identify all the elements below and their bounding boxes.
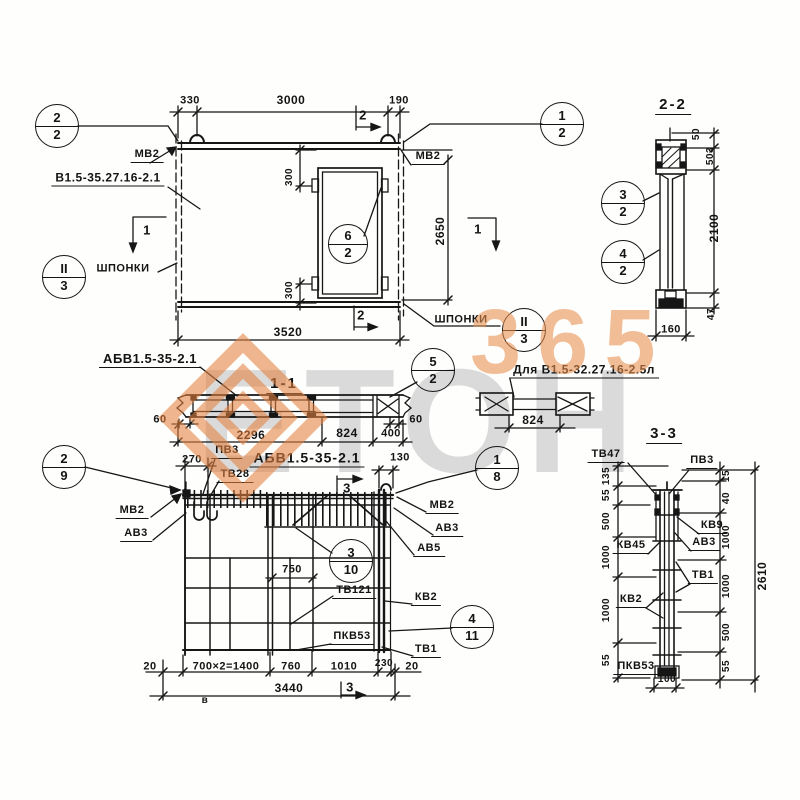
drawing-sheet: ЕТОН — [0, 0, 800, 800]
dim-55-l1: 55 — [602, 489, 612, 501]
dim-3000: 3000 — [277, 94, 306, 106]
dim-2610: 2610 — [756, 562, 768, 591]
label-av3-plan-left: АВ3 — [120, 528, 152, 542]
label-pv3-plan: ПВ3 — [211, 445, 242, 459]
section-3-3-lines — [613, 462, 759, 692]
label-kv9: КВ9 — [697, 520, 727, 534]
callout-top: 4 — [468, 612, 475, 626]
callout-1-8: 18 — [475, 446, 519, 490]
dim-500-l: 500 — [602, 512, 612, 530]
dim-60-left: 60 — [153, 415, 166, 426]
marker-1-left: 1 — [143, 224, 151, 237]
callout-bottom: 2 — [53, 128, 60, 142]
callout-2-2-position: 22 — [35, 104, 79, 148]
callout-bottom: 3 — [60, 279, 67, 293]
callout-bottom: 2 — [619, 205, 626, 219]
callout-top: II — [520, 315, 527, 329]
dim-60-right: 60 — [409, 415, 422, 426]
callout-4-11: 411 — [450, 605, 494, 649]
callout-top: 3 — [619, 188, 626, 202]
marker-2-top: 2 — [359, 109, 367, 122]
dim-3520: 3520 — [274, 326, 303, 338]
label-av3-plan-right: АВ3 — [431, 523, 463, 537]
dim-1000-r2: 1000 — [722, 574, 732, 598]
label-av5: АВ5 — [413, 543, 445, 557]
dim-330: 330 — [180, 96, 200, 107]
marker-3-bottom: 3 — [346, 681, 354, 694]
callout-top: 2 — [60, 452, 67, 466]
dim-2296: 2296 — [237, 429, 266, 441]
marker-3-top: 3 — [343, 482, 351, 495]
dim-135: 135 — [602, 467, 612, 485]
dim-47: 47 — [707, 308, 717, 320]
label-kv45: КВ45 — [613, 540, 650, 554]
dim-190: 190 — [389, 96, 409, 107]
callout-4-2: 42 — [601, 240, 645, 284]
dim-130: 130 — [390, 453, 410, 464]
callout-keys-left: II3 — [42, 255, 86, 299]
label-mv2-right: МВ2 — [412, 151, 445, 165]
callout-bottom: 2 — [558, 126, 565, 140]
label-pkv53-plan: ПКВ53 — [329, 631, 374, 645]
plan-title: АБВ1.5-35-2.1 — [249, 451, 364, 468]
callout-3-2: 32 — [601, 181, 645, 225]
callout-top: 2 — [53, 111, 60, 125]
dim-300-bottom: 300 — [285, 281, 295, 299]
dim-503: 503 — [706, 147, 716, 165]
dim-2650: 2650 — [434, 217, 446, 246]
callout-5-2: 52 — [411, 348, 455, 392]
callout-bottom: 2 — [429, 372, 436, 386]
dim-100: 100 — [658, 675, 676, 685]
callout-opening: 62 — [328, 224, 368, 264]
callout-bottom: 9 — [60, 469, 67, 483]
dim-1010: 1010 — [331, 662, 357, 673]
dim-230: 230 — [375, 659, 393, 669]
dim-3440: 3440 — [275, 682, 304, 694]
label-kv2-33: КВ2 — [616, 594, 646, 608]
label-v-mark: в — [202, 696, 209, 706]
dim-40-r: 40 — [722, 492, 732, 504]
label-mv2-plan-left: МВ2 — [116, 505, 149, 519]
dim-824: 824 — [336, 427, 358, 439]
section-2-2-title: 2-2 — [655, 97, 691, 115]
label-panel-mark: В1.5-35.27.16-2.1 — [51, 172, 164, 187]
callout-bottom: 8 — [493, 470, 500, 484]
callout-bottom: 2 — [619, 264, 626, 278]
dim-50: 50 — [692, 128, 702, 140]
label-tv121: ТВ121 — [332, 585, 376, 599]
label-tv47: ТВ47 — [588, 449, 625, 463]
label-shponki-right: ШПОНКИ — [434, 315, 487, 326]
callout-1-2-position: 12 — [540, 102, 584, 146]
callout-bottom: 3 — [520, 332, 527, 346]
marker-2-bottom: 2 — [357, 309, 365, 322]
callout-top: 1 — [493, 453, 500, 467]
dim-700x2: 700×2=1400 — [193, 662, 260, 673]
label-av3-33: АВ3 — [688, 537, 720, 551]
callout-top: 1 — [558, 109, 565, 123]
callout-top: 5 — [429, 355, 436, 369]
label-tv28: ТВ28 — [217, 469, 254, 483]
label-kv2-plan: КВ2 — [411, 592, 441, 606]
callout-3-10: 310 — [329, 539, 373, 583]
label-shponki-left: ШПОНКИ — [96, 264, 149, 275]
callout-top: 6 — [344, 229, 351, 243]
label-tv1-plan: ТВ1 — [411, 644, 441, 658]
dim-500-r: 500 — [722, 623, 732, 641]
label-tv1-33: ТВ1 — [688, 570, 718, 584]
label-pkv53-33: ПКВ53 — [613, 661, 658, 675]
dim-824-alt: 824 — [522, 414, 544, 426]
callout-bottom: 10 — [344, 563, 358, 577]
dim-270: 270 — [182, 455, 202, 466]
marker-1-right: 1 — [474, 223, 482, 236]
dim-160: 160 — [661, 325, 681, 336]
callout-top: 3 — [347, 546, 354, 560]
callout-2-9: 29 — [42, 445, 86, 489]
dim-1000-l2: 1000 — [602, 598, 612, 622]
dim-760: 760 — [281, 662, 301, 673]
label-pv3-33: ПВ3 — [686, 455, 717, 469]
dim-20-left: 20 — [143, 662, 156, 673]
dim-2100: 2100 — [708, 214, 720, 243]
dim-300-top: 300 — [285, 168, 295, 186]
dim-55-r: 55 — [722, 660, 732, 672]
dim-1000-l1: 1000 — [602, 545, 612, 569]
drawing-linework — [0, 0, 800, 800]
dim-55-l2: 55 — [602, 654, 612, 666]
callout-bottom: 11 — [465, 629, 479, 643]
callout-top: 4 — [619, 247, 626, 261]
dim-15-r: 15 — [722, 470, 732, 482]
label-mv2-left: МВ2 — [131, 149, 164, 163]
section-3-3-title: 3-3 — [646, 426, 682, 444]
dim-750: 750 — [282, 565, 302, 576]
callout-keys-right: II3 — [502, 308, 546, 352]
section-alt-title: Для В1.5-32.27.16-2.5л — [509, 364, 659, 379]
callout-top: II — [60, 262, 67, 276]
dim-400: 400 — [381, 429, 401, 440]
section-1-1-title: 1-1 — [266, 376, 302, 394]
callout-bottom: 2 — [344, 246, 351, 260]
label-mv2-plan-right: МВ2 — [426, 500, 459, 514]
dim-20-right: 20 — [405, 662, 418, 673]
section-1-1-mark: АБВ1.5-35-2.1 — [99, 352, 201, 368]
